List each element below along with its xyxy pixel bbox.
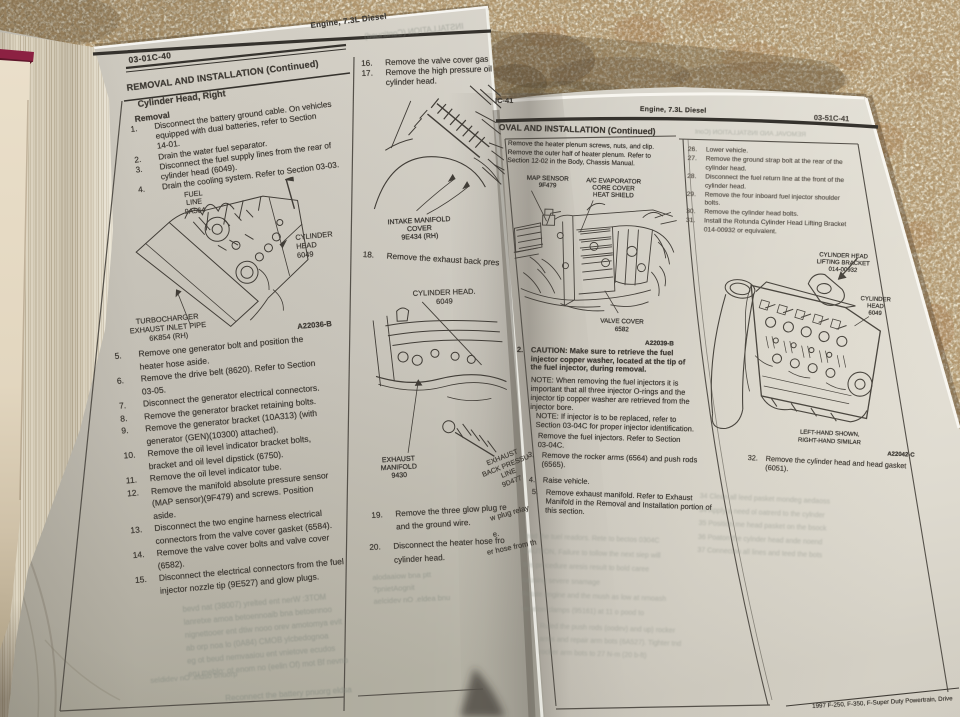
svg-text:HEAT SHIELD: HEAT SHIELD — [593, 191, 634, 199]
svg-text:6049: 6049 — [868, 311, 882, 318]
svg-text:A22042-C: A22042-C — [887, 451, 915, 458]
svg-text:VALVE COVER: VALVE COVER — [600, 318, 644, 326]
svg-text:CYLINDER: CYLINDER — [860, 296, 891, 303]
svg-text:6582: 6582 — [615, 326, 630, 333]
svg-text:A22039-B: A22039-B — [645, 340, 674, 348]
svg-text:HEAD: HEAD — [867, 303, 885, 310]
svg-text:014-00932: 014-00932 — [828, 267, 858, 274]
svg-text:LIFTING BRACKET: LIFTING BRACKET — [817, 259, 871, 267]
svg-text:9F479: 9F479 — [539, 182, 558, 189]
svg-text:LEFT-HAND SHOWN,: LEFT-HAND SHOWN, — [800, 430, 860, 439]
svg-text:RIGHT-HAND SIMILAR: RIGHT-HAND SIMILAR — [798, 438, 862, 447]
